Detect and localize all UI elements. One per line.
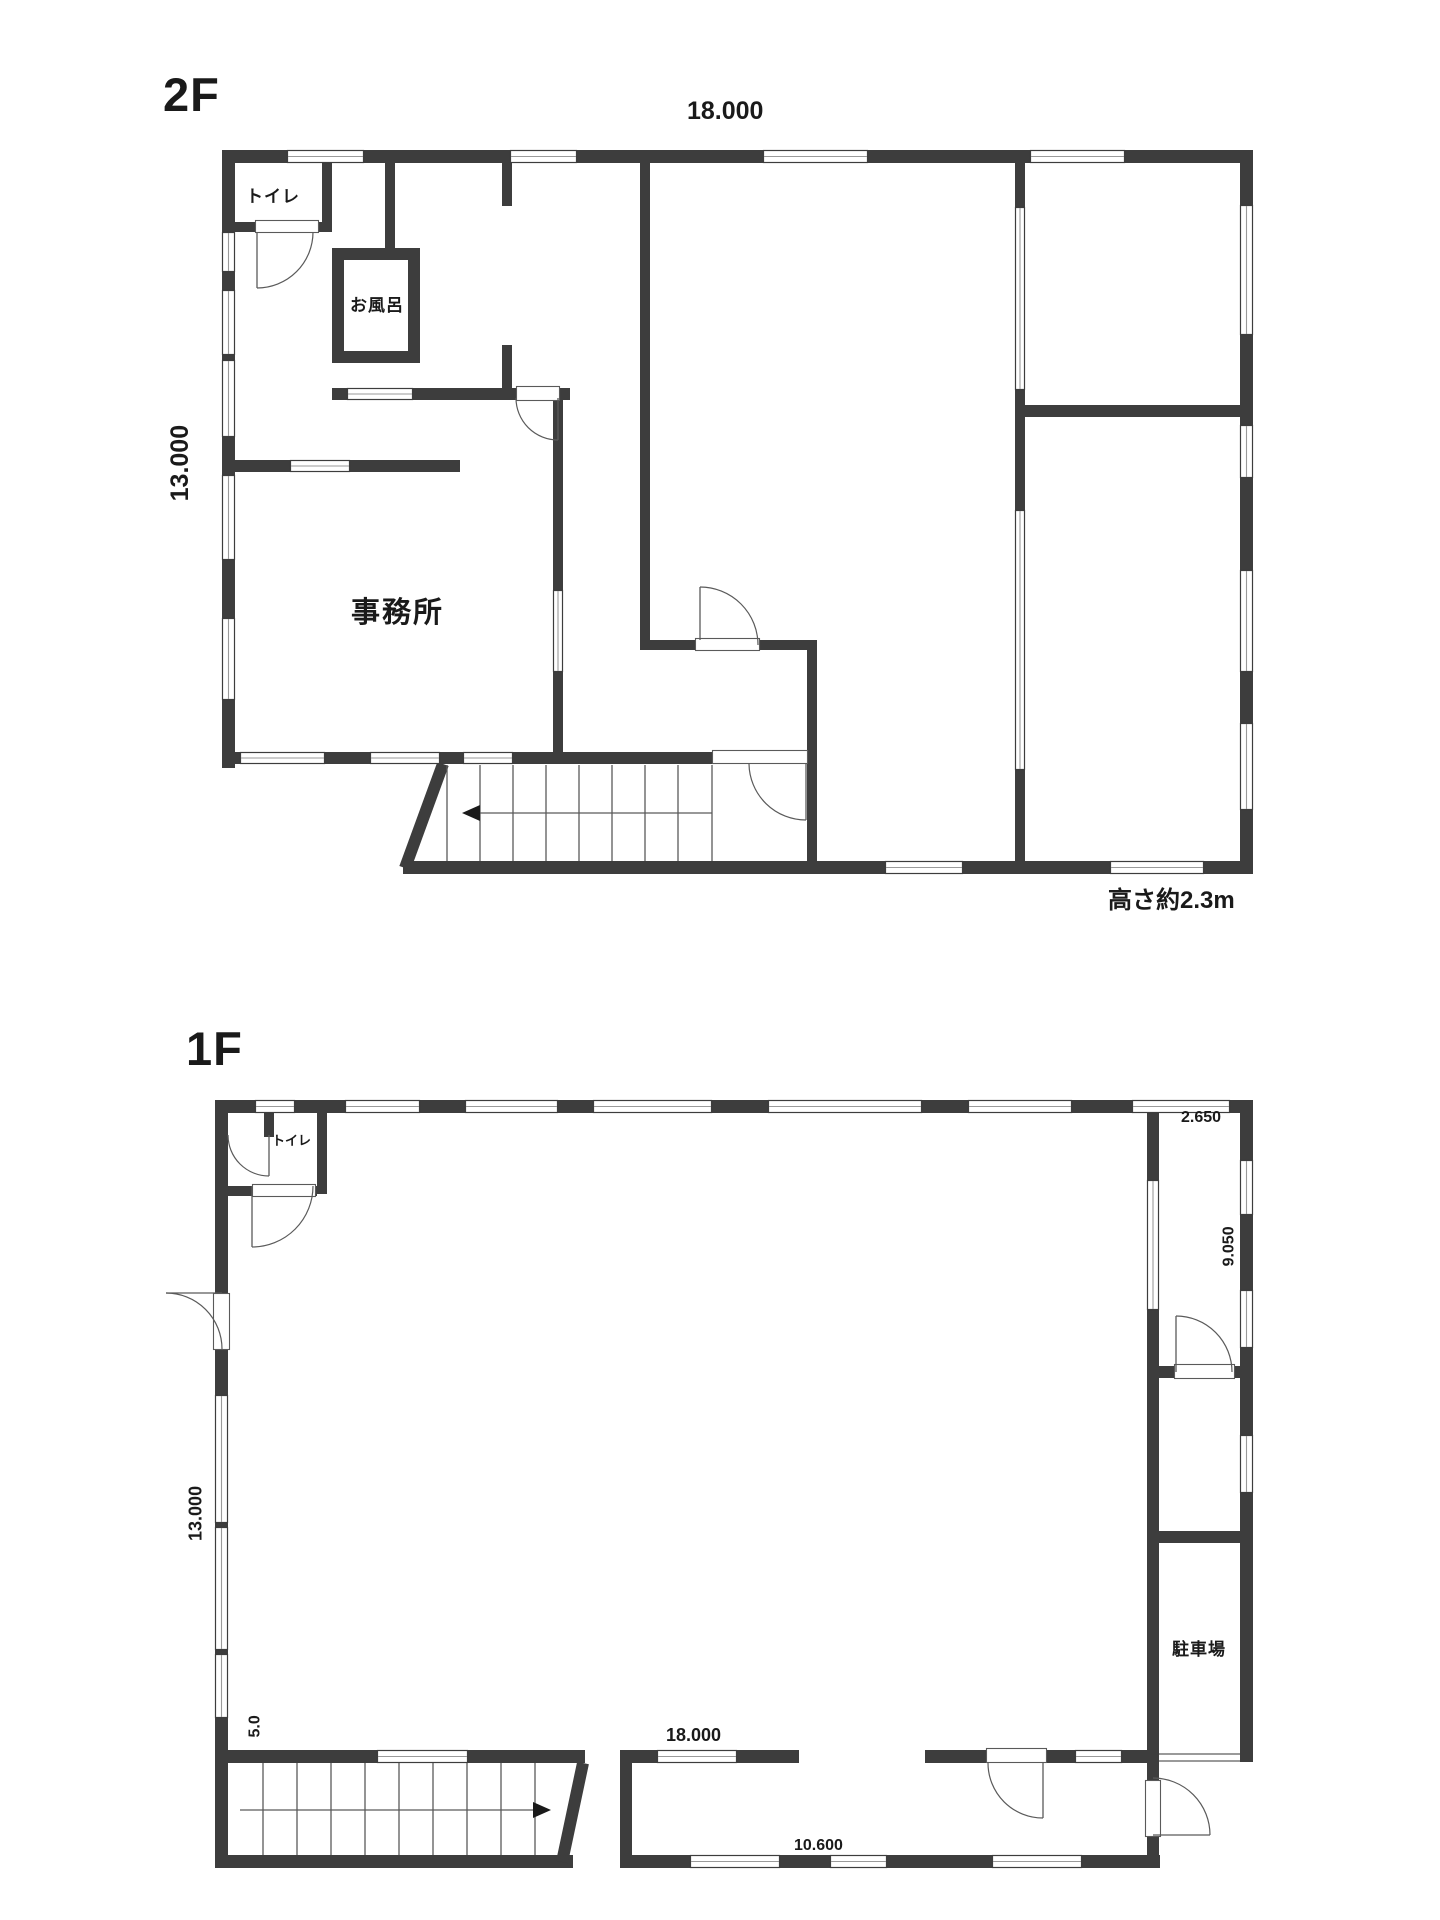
1f-stairs — [240, 1763, 551, 1855]
floor-1f-title: 1F — [186, 1024, 243, 1073]
dim-1f-right-top: 2.650 — [1181, 1110, 1221, 1127]
2f-stairs — [447, 765, 712, 861]
dim-2f-width: 18.000 — [687, 98, 763, 124]
dim-1f-right-side: 9.050 — [1222, 1206, 1239, 1286]
ceiling-height-note: 高さ約2.3m — [1108, 888, 1235, 913]
room-2f-bath: お風呂 — [350, 297, 404, 315]
room-2f-toilet: トイレ — [246, 188, 300, 206]
room-2f-office: 事務所 — [351, 598, 444, 628]
dim-1f-width: 18.000 — [666, 1726, 721, 1745]
floor-plan-page: 2F 18.000 13.000 トイレ お風呂 事務所 高さ約2.3m 1F … — [0, 0, 1440, 1920]
dim-1f-bottom-inner: 10.600 — [794, 1838, 843, 1855]
room-1f-parking: 駐車場 — [1172, 1641, 1226, 1659]
floor-2f-title: 2F — [163, 70, 220, 119]
floor-plan-drawing — [0, 0, 1440, 1920]
1f-plan — [166, 1100, 1253, 1868]
2f-walls — [222, 150, 1253, 874]
2f-plan — [222, 150, 1253, 874]
room-1f-toilet: トイレ — [272, 1134, 311, 1148]
dim-1f-left-bottom: 5.0 — [248, 1696, 265, 1756]
dim-1f-height: 13.000 — [187, 1468, 206, 1558]
dim-2f-height: 13.000 — [167, 413, 193, 513]
1f-stairs-direction-arrow-icon — [533, 1802, 551, 1818]
2f-stairs-direction-arrow-icon — [462, 805, 480, 821]
